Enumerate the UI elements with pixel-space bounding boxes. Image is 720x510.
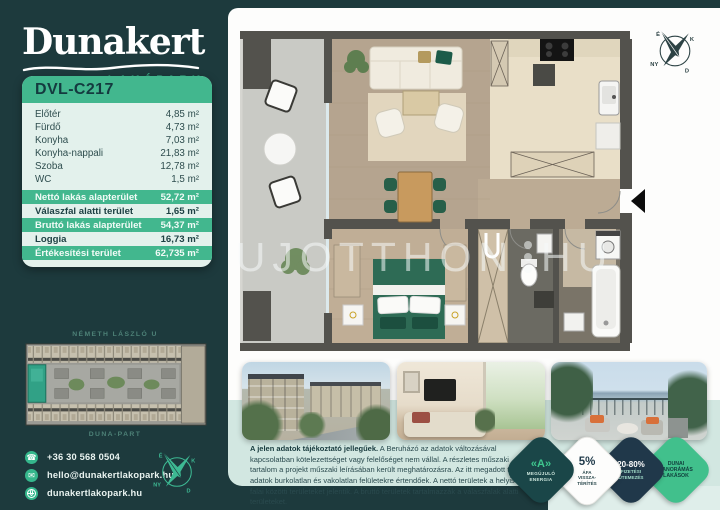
summary-label: Értékesítési terület <box>35 248 121 259</box>
area-label: Konyha-nappali <box>35 148 103 159</box>
area-row: Konyha 7,03 m² <box>22 134 212 147</box>
photo-decor <box>668 418 688 438</box>
unit-code: DVL-C217 <box>22 76 212 103</box>
summary-row-sales: Értékesítési terület 62,735 m² <box>22 246 212 260</box>
entrance-arrow-icon <box>631 189 645 213</box>
brand-name: Dunakert <box>22 24 204 62</box>
svg-text:D: D <box>685 68 689 74</box>
summary-value: 52,72 m² <box>161 192 199 203</box>
compass-icon: É K D NY <box>150 445 204 499</box>
area-row: Konyha-nappali 21,83 m² <box>22 147 212 160</box>
email-icon: ✉ <box>25 469 38 482</box>
area-row: Fürdő 4,73 m² <box>22 121 212 134</box>
area-row: Szoba 12,78 m² <box>22 160 212 173</box>
svg-text:NY: NY <box>153 482 161 488</box>
phone-icon: ☎ <box>25 451 38 464</box>
disclaimer-body: A Beruházó az adatok változásával kapcso… <box>250 444 531 506</box>
area-row: WC 1,5 m² <box>22 173 212 186</box>
summary-row-loggia: Loggia 16,73 m² <box>22 232 212 246</box>
interior-photo <box>397 362 545 440</box>
summary-label: Loggia <box>35 234 66 245</box>
photo-decor <box>551 362 593 426</box>
area-value: 7,03 m² <box>166 135 199 146</box>
summary-row-partition: Válaszfal alatti terület 1,65 m² <box>22 204 212 218</box>
area-label: Előtér <box>35 109 61 120</box>
svg-text:É: É <box>159 452 163 460</box>
photo-decor <box>617 423 639 434</box>
summary-label: Bruttó lakás alapterület <box>35 220 142 231</box>
exterior-photo <box>242 362 390 440</box>
svg-text:K: K <box>191 458 195 464</box>
globe-icon <box>25 487 38 500</box>
floor-plan-image <box>240 30 650 352</box>
area-label: Fürdő <box>35 122 61 133</box>
contact-phone-row[interactable]: ☎ +36 30 568 0504 <box>25 450 120 464</box>
terrace-photo <box>551 362 707 440</box>
wave-icon <box>22 63 200 73</box>
unit-data-card: DVL-C217 Előtér 4,85 m² Fürdő 4,73 m² Ko… <box>22 76 212 267</box>
area-value: 12,78 m² <box>160 161 199 172</box>
photo-decor <box>590 415 604 423</box>
summary-label: Nettó lakás alapterület <box>35 192 137 203</box>
svg-text:É: É <box>656 30 660 38</box>
summary-row-net: Nettó lakás alapterület 52,72 m² <box>22 190 212 204</box>
photo-decor <box>646 417 658 424</box>
area-label: Szoba <box>35 161 63 172</box>
summary-value: 16,73 m² <box>161 234 199 245</box>
summary-row-gross: Bruttó lakás alapterület 54,37 m² <box>22 218 212 232</box>
website-url: dunakertlakopark.hu <box>47 488 142 498</box>
summary-value: 1,65 m² <box>166 206 199 217</box>
area-table: Előtér 4,85 m² Fürdő 4,73 m² Konyha 7,03… <box>22 103 212 267</box>
flyer-page: Dunakert LAKÓPARK DVL-C217 Előtér 4,85 m… <box>0 0 720 510</box>
area-value: 21,83 m² <box>160 148 199 159</box>
compass-icon: É K D NY <box>647 23 703 79</box>
svg-text:K: K <box>690 37 695 43</box>
photo-decor <box>424 379 457 401</box>
photo-decor <box>403 371 420 392</box>
area-row: Előtér 4,85 m² <box>22 108 212 121</box>
area-value: 1,5 m² <box>171 174 199 185</box>
photo-decor <box>297 412 327 439</box>
area-label: WC <box>35 174 51 185</box>
area-value: 4,85 m² <box>166 109 199 120</box>
phone-number: +36 30 568 0504 <box>47 452 120 462</box>
disclaimer-text: A jelen adatok tájékoztató jellegűek. A … <box>250 444 538 508</box>
summary-value: 54,37 m² <box>161 220 199 231</box>
area-label: Konyha <box>35 135 68 146</box>
svg-text:NY: NY <box>650 62 658 68</box>
area-value: 4,73 m² <box>166 122 199 133</box>
photo-decor <box>356 404 390 440</box>
disclaimer-lead: A jelen adatok tájékoztató jellegűek. <box>250 444 378 453</box>
photo-decor <box>412 412 430 423</box>
badge-energy: «A» MEGÚJULÓ ENERGIA <box>503 432 579 508</box>
siteplan-river-label: DUNA-PART <box>20 431 210 438</box>
photo-decor <box>242 399 283 440</box>
svg-text:D: D <box>187 489 191 495</box>
siteplan-street-label: NÉMETH LÁSZLÓ U <box>20 331 210 338</box>
contact-website-row[interactable]: dunakertlakopark.hu <box>25 486 142 500</box>
summary-value: 62,735 m² <box>155 248 199 259</box>
photo-decor <box>475 406 494 436</box>
siteplan-map-image <box>23 341 209 428</box>
summary-label: Válaszfal alatti terület <box>35 206 133 217</box>
